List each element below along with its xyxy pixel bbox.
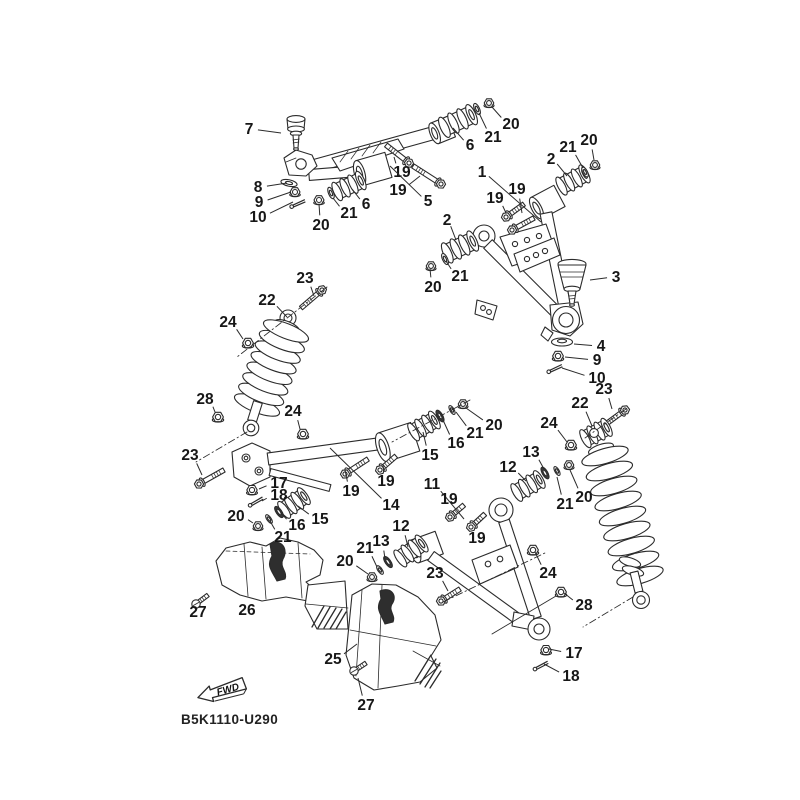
part-number-callout-25: 25 bbox=[324, 651, 342, 668]
fwd-direction-arrow: FWD bbox=[196, 676, 248, 706]
part-number-callout-20: 20 bbox=[336, 553, 353, 570]
part-number-callout-13: 13 bbox=[522, 444, 540, 461]
part-number-callout-7: 7 bbox=[245, 121, 254, 138]
part-number-callout-24: 24 bbox=[284, 403, 302, 420]
part-number-callout-20: 20 bbox=[312, 217, 329, 234]
part-number-callout-28: 28 bbox=[575, 597, 593, 614]
part-number-callout-2: 2 bbox=[443, 212, 452, 229]
part-number-callout-18: 18 bbox=[562, 668, 580, 685]
part-number-callout-23: 23 bbox=[595, 381, 613, 398]
part-number-callout-21: 21 bbox=[559, 139, 577, 156]
part-number-callout-20: 20 bbox=[502, 116, 519, 133]
part-number-callout-21: 21 bbox=[451, 268, 469, 285]
part-number-callout-10: 10 bbox=[249, 209, 266, 226]
part-number-callout-20: 20 bbox=[227, 508, 244, 525]
exploded-parts-diagram: 7891020216191956212012212019192212034910… bbox=[0, 0, 800, 800]
part-number-callout-3: 3 bbox=[612, 269, 621, 286]
part-number-callout-21: 21 bbox=[466, 425, 484, 442]
part-number-callout-23: 23 bbox=[296, 270, 314, 287]
part-number-callout-21: 21 bbox=[484, 129, 502, 146]
part-number-callout-5: 5 bbox=[424, 193, 433, 210]
part-number-callout-20: 20 bbox=[485, 417, 502, 434]
part-number-callout-17: 17 bbox=[565, 645, 582, 662]
part-number-callout-9: 9 bbox=[593, 352, 602, 369]
part-number-callout-24: 24 bbox=[540, 415, 558, 432]
part-number-callout-23: 23 bbox=[426, 565, 444, 582]
part-number-callout-19: 19 bbox=[393, 164, 411, 181]
part-number-callout-12: 12 bbox=[392, 518, 409, 535]
part-number-callout-23: 23 bbox=[181, 447, 199, 464]
part-number-callout-20: 20 bbox=[580, 132, 597, 149]
part-number-callout-15: 15 bbox=[421, 447, 439, 464]
part-number-callout-19: 19 bbox=[389, 182, 407, 199]
part-number-callout-19: 19 bbox=[440, 491, 458, 508]
part-number-callout-20: 20 bbox=[424, 279, 441, 296]
part-number-callout-2: 2 bbox=[547, 151, 556, 168]
part-number-callout-19: 19 bbox=[377, 473, 395, 490]
diagram-illustration bbox=[192, 99, 665, 690]
part-number-callout-27: 27 bbox=[189, 604, 206, 621]
part-number-callout-22: 22 bbox=[258, 292, 275, 309]
part-number-callout-6: 6 bbox=[362, 196, 371, 213]
part-number-callout-22: 22 bbox=[571, 395, 588, 412]
part-number-callout-26: 26 bbox=[238, 602, 256, 619]
part-number-callout-11: 11 bbox=[424, 476, 441, 493]
part-number-callout-19: 19 bbox=[468, 530, 486, 547]
part-number-callout-21: 21 bbox=[356, 540, 374, 557]
part-number-callout-27: 27 bbox=[357, 697, 374, 714]
part-number-callout-24: 24 bbox=[219, 314, 237, 331]
part-number-callout-24: 24 bbox=[539, 565, 557, 582]
part-number-callout-1: 1 bbox=[478, 164, 487, 181]
part-number-callout-15: 15 bbox=[311, 511, 329, 528]
part-number-callout-19: 19 bbox=[486, 190, 504, 207]
part-number-callout-16: 16 bbox=[447, 435, 465, 452]
part-number-callout-19: 19 bbox=[508, 181, 526, 198]
part-number-callout-13: 13 bbox=[372, 533, 390, 550]
part-number-callout-19: 19 bbox=[342, 483, 360, 500]
part-number-callout-21: 21 bbox=[340, 205, 358, 222]
diagram-code: B5K1110-U290 bbox=[181, 712, 278, 727]
part-number-callout-21: 21 bbox=[274, 529, 292, 546]
part-number-callout-14: 14 bbox=[382, 497, 400, 514]
part-number-callout-18: 18 bbox=[270, 487, 288, 504]
part-number-callout-6: 6 bbox=[466, 137, 475, 154]
part-number-callout-28: 28 bbox=[196, 391, 214, 408]
part-number-callout-12: 12 bbox=[499, 459, 516, 476]
part-number-callout-20: 20 bbox=[575, 489, 592, 506]
parts-diagram-page: 7891020216191956212012212019192212034910… bbox=[0, 0, 800, 800]
part-number-callout-21: 21 bbox=[556, 496, 574, 513]
